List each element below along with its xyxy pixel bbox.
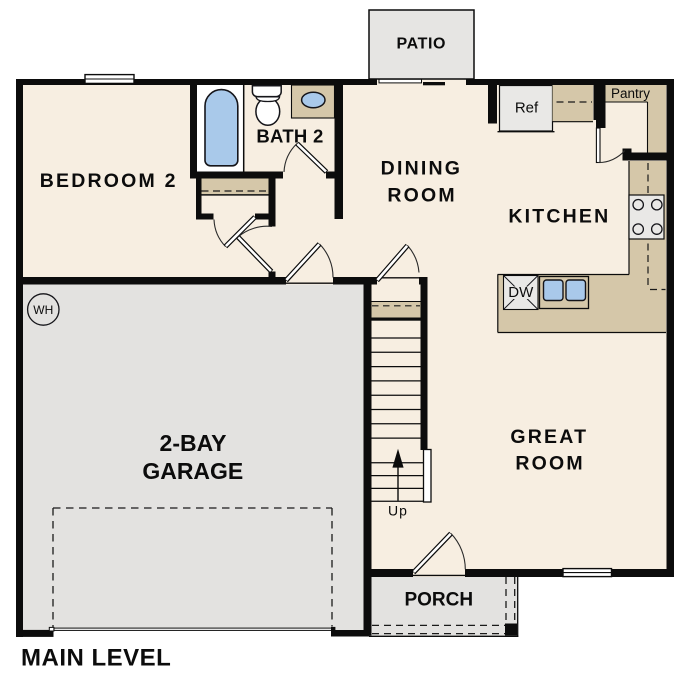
svg-text:Pantry: Pantry	[611, 86, 650, 101]
svg-text:KITCHEN: KITCHEN	[508, 205, 610, 227]
svg-text:MAIN LEVEL: MAIN LEVEL	[21, 645, 171, 672]
svg-text:PATIO: PATIO	[397, 35, 447, 52]
svg-text:2-BAY: 2-BAY	[160, 430, 227, 456]
svg-text:BEDROOM 2: BEDROOM 2	[40, 170, 178, 192]
svg-text:PORCH: PORCH	[404, 590, 473, 611]
svg-text:DINING: DINING	[381, 157, 462, 179]
svg-text:ROOM: ROOM	[387, 184, 456, 206]
svg-text:WH: WH	[33, 303, 53, 317]
svg-text:Up: Up	[388, 503, 408, 519]
svg-text:Ref: Ref	[515, 100, 539, 117]
svg-text:GARAGE: GARAGE	[142, 458, 243, 484]
svg-text:BATH 2: BATH 2	[256, 126, 323, 147]
svg-text:DW: DW	[508, 284, 534, 301]
svg-text:GREAT: GREAT	[510, 426, 588, 448]
svg-text:ROOM: ROOM	[515, 453, 584, 475]
